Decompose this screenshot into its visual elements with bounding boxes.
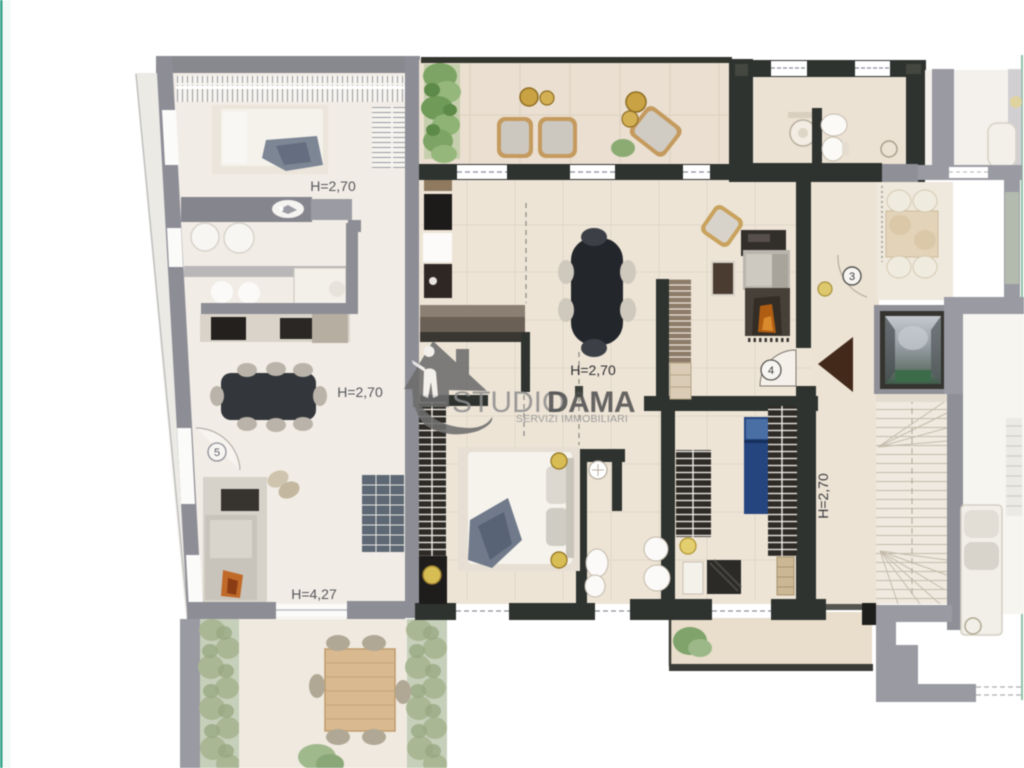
svg-text:3: 3 — [849, 271, 855, 283]
svg-text:SERVIZI IMMOBILIARI: SERVIZI IMMOBILIARI — [516, 413, 628, 425]
svg-text:H=4,27: H=4,27 — [291, 586, 337, 602]
svg-text:H=2,70: H=2,70 — [310, 178, 356, 194]
svg-text:H=2,70: H=2,70 — [337, 384, 383, 400]
svg-text:H=2,70: H=2,70 — [815, 473, 831, 519]
svg-text:4: 4 — [768, 365, 774, 377]
svg-text:H=2,70: H=2,70 — [570, 362, 616, 378]
svg-text:5: 5 — [214, 447, 220, 459]
